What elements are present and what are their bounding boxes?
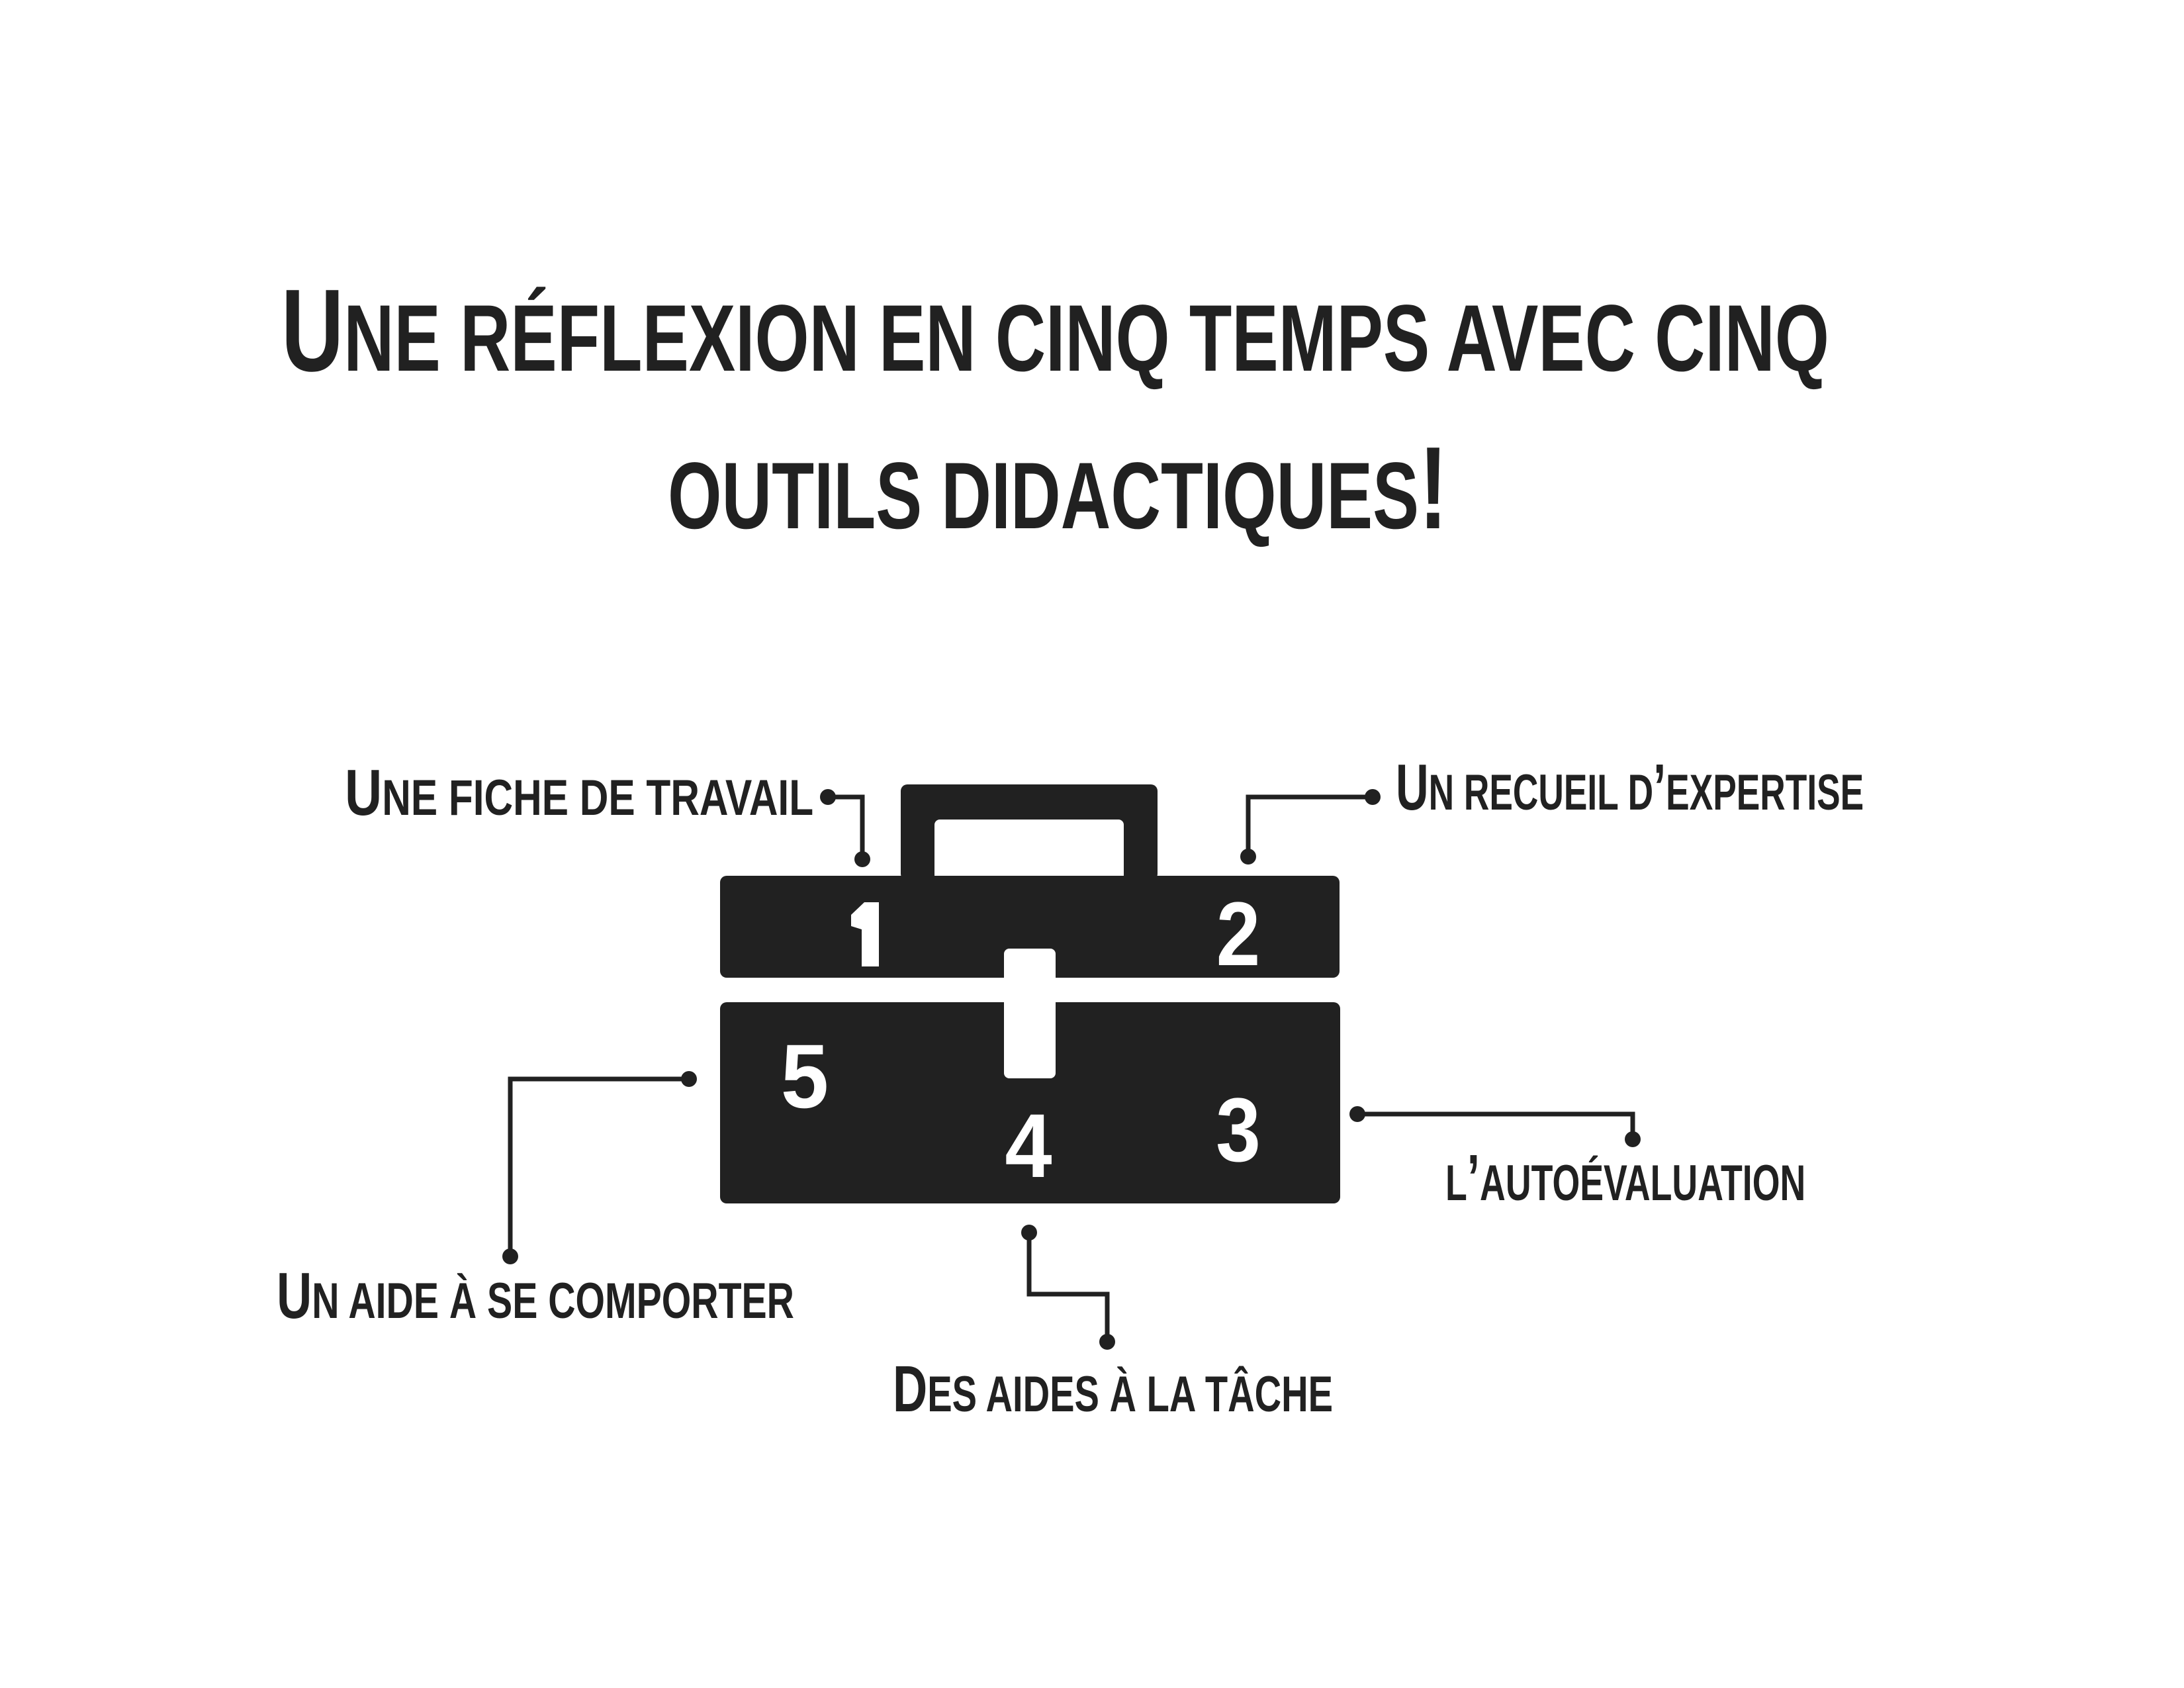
svg-text:4: 4 [1005,1096,1052,1197]
svg-text:3: 3 [1216,1080,1261,1180]
svg-text:2: 2 [1216,884,1261,984]
svg-text:5: 5 [781,1026,829,1127]
